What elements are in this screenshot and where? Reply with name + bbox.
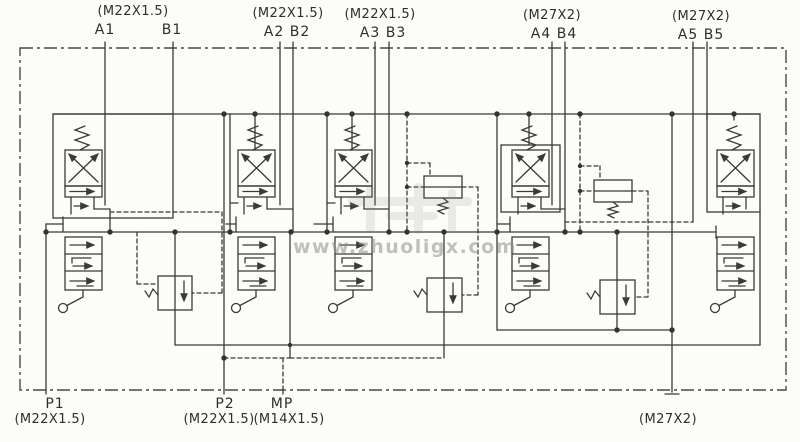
pilot-valve-2: [580, 114, 648, 297]
thread-label-section-5: (M27X2): [672, 10, 730, 25]
port-label-b1: B1: [162, 22, 183, 38]
spring-icon: [727, 126, 741, 150]
port-label-a3b3: A3 B3: [360, 25, 406, 41]
spool-valve-section-3: [314, 126, 389, 313]
port-label-p1: P1: [45, 396, 64, 412]
port-label-mp: MP: [271, 396, 294, 412]
hydraulic-circuit-diagram: [0, 0, 800, 442]
relief-valve-3: [587, 232, 635, 330]
thread-label-section-2: (M22X1.5): [252, 7, 323, 22]
thread-label-section-1: (M22X1.5): [97, 5, 168, 20]
thread-label-section-4: (M27X2): [523, 9, 581, 24]
watermark-url-text: www.zhuoligx.com: [293, 236, 517, 258]
watermark-logo: [348, 183, 472, 234]
spool-valve-section-2: [226, 126, 293, 313]
lever-icon: [239, 290, 256, 306]
thread-label-t: (M27X2): [639, 413, 697, 428]
lever-icon: [513, 290, 530, 306]
lever-icon: [718, 290, 735, 306]
thread-label-section-3: (M22X1.5): [344, 8, 415, 23]
spring-icon: [587, 291, 600, 299]
port-t-line: [665, 114, 679, 394]
lever-icon: [336, 290, 353, 306]
lever-icon: [66, 290, 83, 306]
thread-label-mp: (M14X1.5): [253, 413, 324, 428]
port-label-a5b5: A5 B5: [678, 27, 724, 43]
spring-icon: [145, 289, 158, 297]
scanned-hydraulic-schematic-page: { "top_ports": [ {"thread": "(M22X1.5)",…: [0, 0, 800, 442]
thread-label-p1: (M22X1.5): [14, 413, 85, 428]
thread-label-p2: (M22X1.5): [183, 413, 254, 428]
spring-icon: [608, 202, 618, 218]
spool-valve-section-1: [46, 126, 110, 313]
spool-valve-section-5: [711, 126, 755, 313]
spring-icon: [75, 126, 89, 150]
port-label-p2: P2: [215, 396, 234, 412]
port-label-a2b2: A2 B2: [264, 24, 310, 40]
spool-valve-section-4: [497, 126, 565, 313]
port-label-a4b4: A4 B4: [531, 26, 577, 42]
section-feed-pipes: [230, 114, 734, 232]
spring-icon: [414, 289, 427, 297]
port-label-a1: A1: [95, 22, 115, 38]
